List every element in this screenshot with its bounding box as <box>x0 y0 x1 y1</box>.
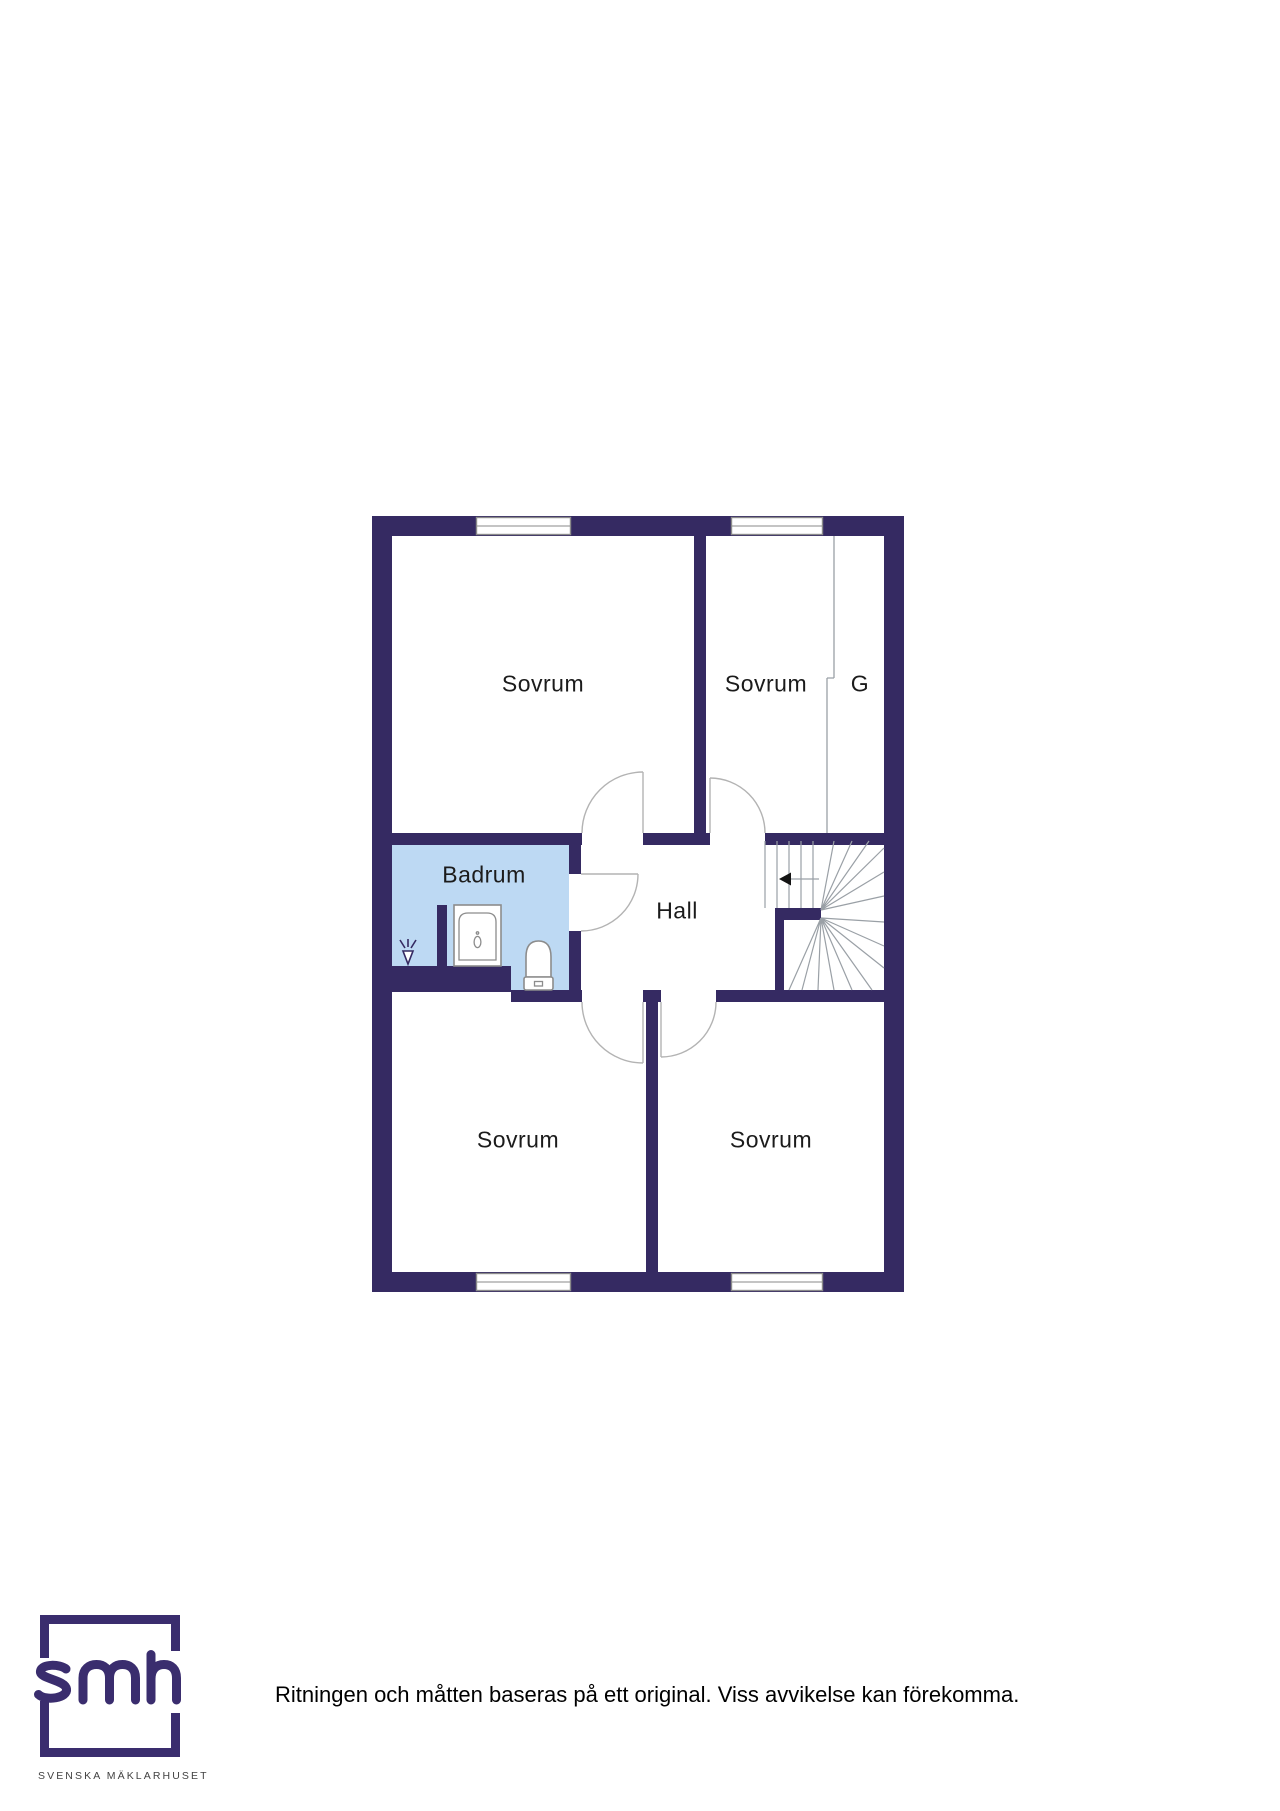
window <box>477 518 571 535</box>
door-swing <box>710 778 765 833</box>
window <box>732 1274 823 1291</box>
disclaimer-text: Ritningen och måtten baseras på ett orig… <box>275 1682 1019 1708</box>
wardrobe-partition-line <box>827 536 834 833</box>
room-label-sovrum-bottom-right: Sovrum <box>730 1127 812 1154</box>
room-label-badrum: Badrum <box>442 862 526 889</box>
room-label-sovrum-top-left: Sovrum <box>502 671 584 698</box>
logo-letter-h <box>151 1655 177 1701</box>
sink-icon <box>454 905 501 966</box>
floorplan-canvas <box>0 0 1280 1811</box>
door-swing <box>582 1002 643 1063</box>
toilet-icon <box>524 941 553 990</box>
logo-letter-s <box>39 1665 67 1698</box>
stairs-direction-arrow <box>779 873 791 886</box>
window <box>732 518 823 535</box>
floorplan-page: Sovrum Sovrum G Badrum Hall Sovrum Sovru… <box>0 0 1280 1811</box>
logo-letter-m <box>83 1665 136 1701</box>
door-swing <box>581 874 638 931</box>
room-label-sovrum-top-right: Sovrum <box>725 671 807 698</box>
door-swing <box>582 772 643 833</box>
room-label-garderob: G <box>851 671 869 698</box>
room-label-sovrum-bottom-left: Sovrum <box>477 1127 559 1154</box>
smh-logo <box>39 1620 177 1753</box>
window <box>477 1274 571 1291</box>
door-swing <box>661 1002 716 1057</box>
brand-name: SVENSKA MÄKLARHUSET <box>38 1770 209 1782</box>
room-label-hall: Hall <box>656 898 698 925</box>
